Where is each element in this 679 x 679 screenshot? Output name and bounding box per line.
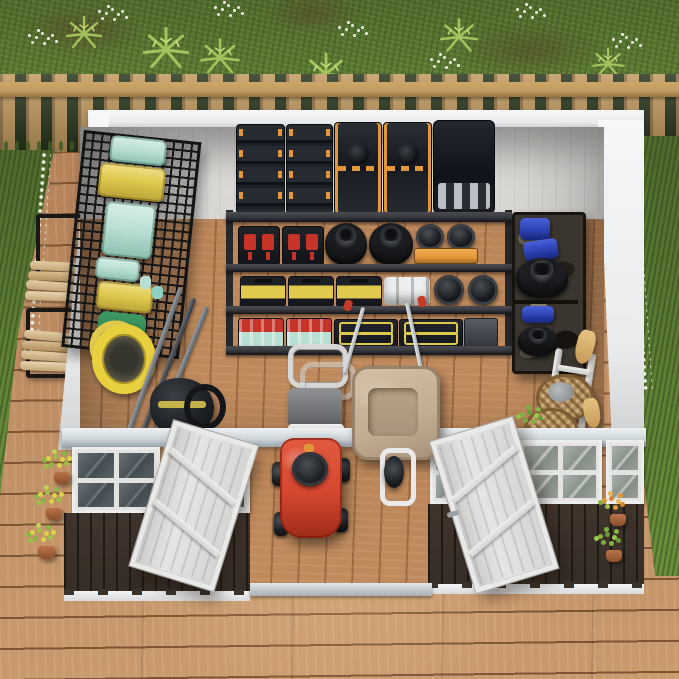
fence-rail (0, 82, 679, 97)
wheel-hub (468, 275, 498, 305)
window-pane (119, 453, 155, 478)
window-pane (563, 446, 597, 470)
tool-case-tall (334, 122, 382, 214)
spare-tire (516, 258, 568, 298)
rack-post (226, 210, 233, 352)
terracotta-pot (54, 472, 70, 484)
front-window (72, 447, 160, 513)
wildflower-cluster (98, 10, 101, 13)
shelf-board (226, 306, 512, 314)
tool-case-tall (383, 122, 432, 214)
backyard-shed-scene (0, 0, 679, 679)
blue-bin (522, 306, 554, 323)
wheelbarrow-tub-inner (368, 388, 418, 436)
stacked-tool-cases (286, 124, 333, 214)
wildflower-cluster (612, 38, 615, 41)
wildflower-cluster (516, 8, 519, 11)
yellow-toolbox (288, 276, 334, 308)
terracotta-pot (46, 508, 62, 520)
flower-cluster (30, 530, 35, 535)
case-yellow-trim (334, 319, 398, 348)
flower-cluster-orange (602, 498, 607, 503)
front-wheel (384, 456, 404, 488)
mower-engine (292, 452, 328, 486)
mint-storage-tote (101, 201, 156, 260)
fern-plant (436, 14, 482, 60)
tool-grip (140, 276, 151, 289)
wheel-hub (416, 224, 444, 250)
stacked-tool-cases (236, 124, 285, 214)
yellow-toolbox (240, 276, 286, 308)
yellow-toolbox (336, 276, 382, 308)
tire-stack (325, 223, 367, 265)
window-pane (563, 475, 597, 499)
wildflower-cluster (28, 34, 31, 37)
window-pane (612, 446, 638, 470)
parts-organizer-stack (238, 318, 284, 348)
flower-cluster (38, 492, 43, 497)
box-red-latches (238, 226, 280, 266)
terracotta-pot (606, 550, 622, 562)
camo-shelf-edge (514, 300, 578, 304)
fern-plant (138, 22, 194, 78)
shelf-base (226, 346, 512, 355)
tool-grip (152, 286, 163, 299)
box-red-latches (282, 226, 324, 266)
mint-storage-tote (95, 256, 141, 282)
wheel-hub (447, 224, 475, 250)
wheel-hub (434, 275, 464, 305)
wildflower-cluster (214, 6, 217, 9)
orange-tool-case (414, 248, 478, 264)
spare-tire (518, 326, 558, 356)
terracotta-pot (610, 514, 626, 526)
tire-stack (369, 223, 413, 265)
siding-tabs-right (428, 582, 644, 588)
front-window (606, 440, 644, 504)
potted-green-plant (520, 412, 525, 417)
blue-jug (520, 218, 550, 240)
window-pane (78, 483, 114, 508)
basket-contents-gray (548, 382, 574, 402)
shelf-board (226, 212, 512, 222)
garage-storage-rack (226, 118, 512, 352)
fuel-cap (304, 444, 314, 452)
rack-post (505, 210, 512, 352)
wildflower-cluster (430, 58, 433, 61)
wildflower-cluster (338, 26, 341, 29)
window-pane (612, 475, 638, 499)
terracotta-pot (38, 546, 55, 559)
flower-cluster-green (598, 534, 603, 539)
fern-plant (62, 12, 106, 56)
door-threshold (250, 583, 432, 596)
cart-catcher-bag (288, 388, 342, 428)
yellow-tote-lid (97, 162, 166, 203)
large-storage-bin (433, 120, 495, 214)
gray-case (464, 318, 498, 348)
shelf-board (226, 264, 512, 272)
flower-cluster (46, 456, 51, 461)
siding-tabs-left (64, 589, 250, 595)
window-pane (524, 446, 558, 470)
window-pane (78, 453, 114, 478)
